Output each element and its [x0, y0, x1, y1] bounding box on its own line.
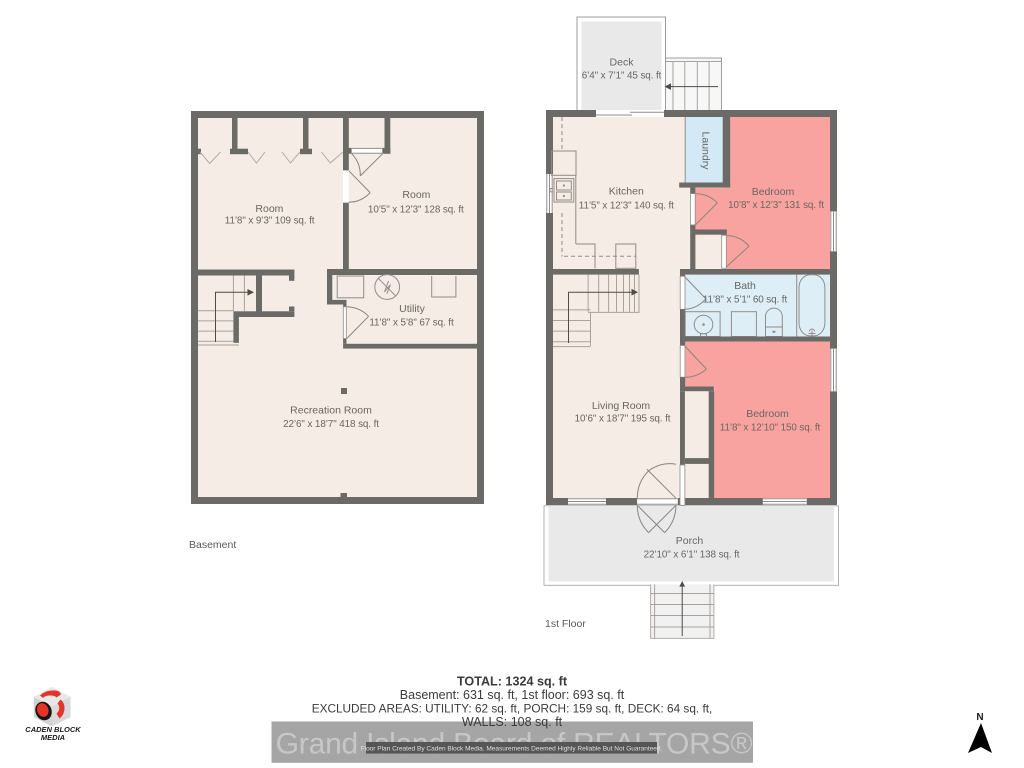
svg-text:Deck: Deck — [610, 57, 635, 69]
svg-text:EXCLUDED AREAS: UTILITY: 62 sq: EXCLUDED AREAS: UTILITY: 62 sq. ft, PORC… — [312, 702, 713, 716]
svg-text:Utility: Utility — [399, 303, 425, 315]
svg-text:11’8" x 5’8" 67 sq. ft: 11’8" x 5’8" 67 sq. ft — [369, 318, 454, 329]
svg-text:Basement: Basement — [189, 539, 236, 551]
svg-text:10’5" x 12’3" 128 sq. ft: 10’5" x 12’3" 128 sq. ft — [368, 205, 464, 216]
svg-text:1st Floor: 1st Floor — [545, 618, 586, 630]
svg-text:Floor Plan Created By Caden Bl: Floor Plan Created By Caden Block Media.… — [361, 746, 663, 753]
svg-text:22’10" x 6’1" 138 sq. ft: 22’10" x 6’1" 138 sq. ft — [644, 550, 740, 561]
svg-text:11’5" x 12’3" 140 sq. ft: 11’5" x 12’3" 140 sq. ft — [579, 201, 674, 212]
svg-text:11’8" x 12’10" 150 sq. ft: 11’8" x 12’10" 150 sq. ft — [720, 423, 821, 434]
svg-text:Porch: Porch — [676, 535, 704, 547]
svg-text:22’6" x 18’7" 418 sq. ft: 22’6" x 18’7" 418 sq. ft — [283, 419, 379, 430]
svg-text:Bath: Bath — [734, 280, 756, 292]
svg-text:N: N — [976, 712, 983, 723]
svg-text:10’6" x 18’7" 195 sq. ft: 10’6" x 18’7" 195 sq. ft — [575, 414, 671, 425]
svg-text:Bedroom: Bedroom — [746, 408, 789, 420]
svg-text:Living Room: Living Room — [592, 400, 651, 412]
svg-text:Room: Room — [402, 189, 430, 201]
svg-text:11’8" x 5’1" 60 sq. ft: 11’8" x 5’1" 60 sq. ft — [703, 295, 788, 306]
svg-text:Basement: 631 sq. ft, 1st floo: Basement: 631 sq. ft, 1st floor: 693 sq.… — [400, 688, 625, 702]
svg-text:10’8" x 12’3" 131 sq. ft: 10’8" x 12’3" 131 sq. ft — [728, 200, 824, 211]
svg-text:11’8" x 9’3" 109 sq. ft: 11’8" x 9’3" 109 sq. ft — [225, 216, 315, 227]
svg-text:Kitchen: Kitchen — [609, 186, 644, 198]
svg-text:Bedroom: Bedroom — [752, 186, 795, 198]
svg-text:Laundry: Laundry — [700, 132, 712, 171]
svg-text:TOTAL: 1324 sq. ft: TOTAL: 1324 sq. ft — [457, 675, 568, 689]
svg-text:MEDIA: MEDIA — [41, 733, 65, 742]
svg-text:Room: Room — [255, 203, 283, 215]
svg-text:6’4" x 7’1" 45 sq. ft: 6’4" x 7’1" 45 sq. ft — [582, 71, 662, 82]
svg-text:WALLS: 108 sq. ft: WALLS: 108 sq. ft — [462, 715, 563, 729]
svg-text:Recreation Room: Recreation Room — [290, 405, 372, 417]
